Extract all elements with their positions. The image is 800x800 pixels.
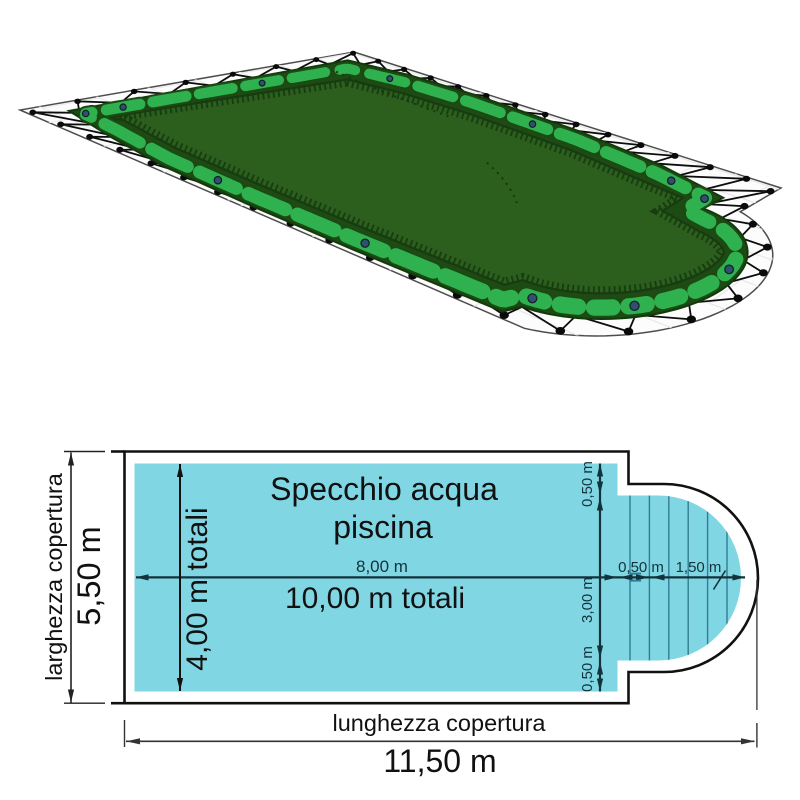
svg-text:0,50 m: 0,50 m (579, 646, 596, 692)
svg-text:0,50 m: 0,50 m (579, 461, 596, 507)
svg-text:5,50 m: 5,50 m (71, 526, 107, 625)
svg-text:lunghezza copertura: lunghezza copertura (333, 710, 547, 736)
svg-text:8,00 m: 8,00 m (356, 557, 408, 576)
svg-text:1,50 m: 1,50 m (676, 559, 722, 576)
svg-text:4,00 m totali: 4,00 m totali (181, 507, 214, 670)
svg-text:10,00 m totali: 10,00 m totali (285, 582, 465, 615)
svg-text:piscina: piscina (333, 509, 433, 545)
svg-text:Specchio acqua: Specchio acqua (270, 471, 498, 507)
svg-text:11,50 m: 11,50 m (383, 743, 496, 779)
svg-text:0,50 m: 0,50 m (618, 559, 664, 576)
svg-text:3,00 m: 3,00 m (579, 577, 596, 623)
svg-text:larghezza copertura: larghezza copertura (41, 472, 67, 681)
